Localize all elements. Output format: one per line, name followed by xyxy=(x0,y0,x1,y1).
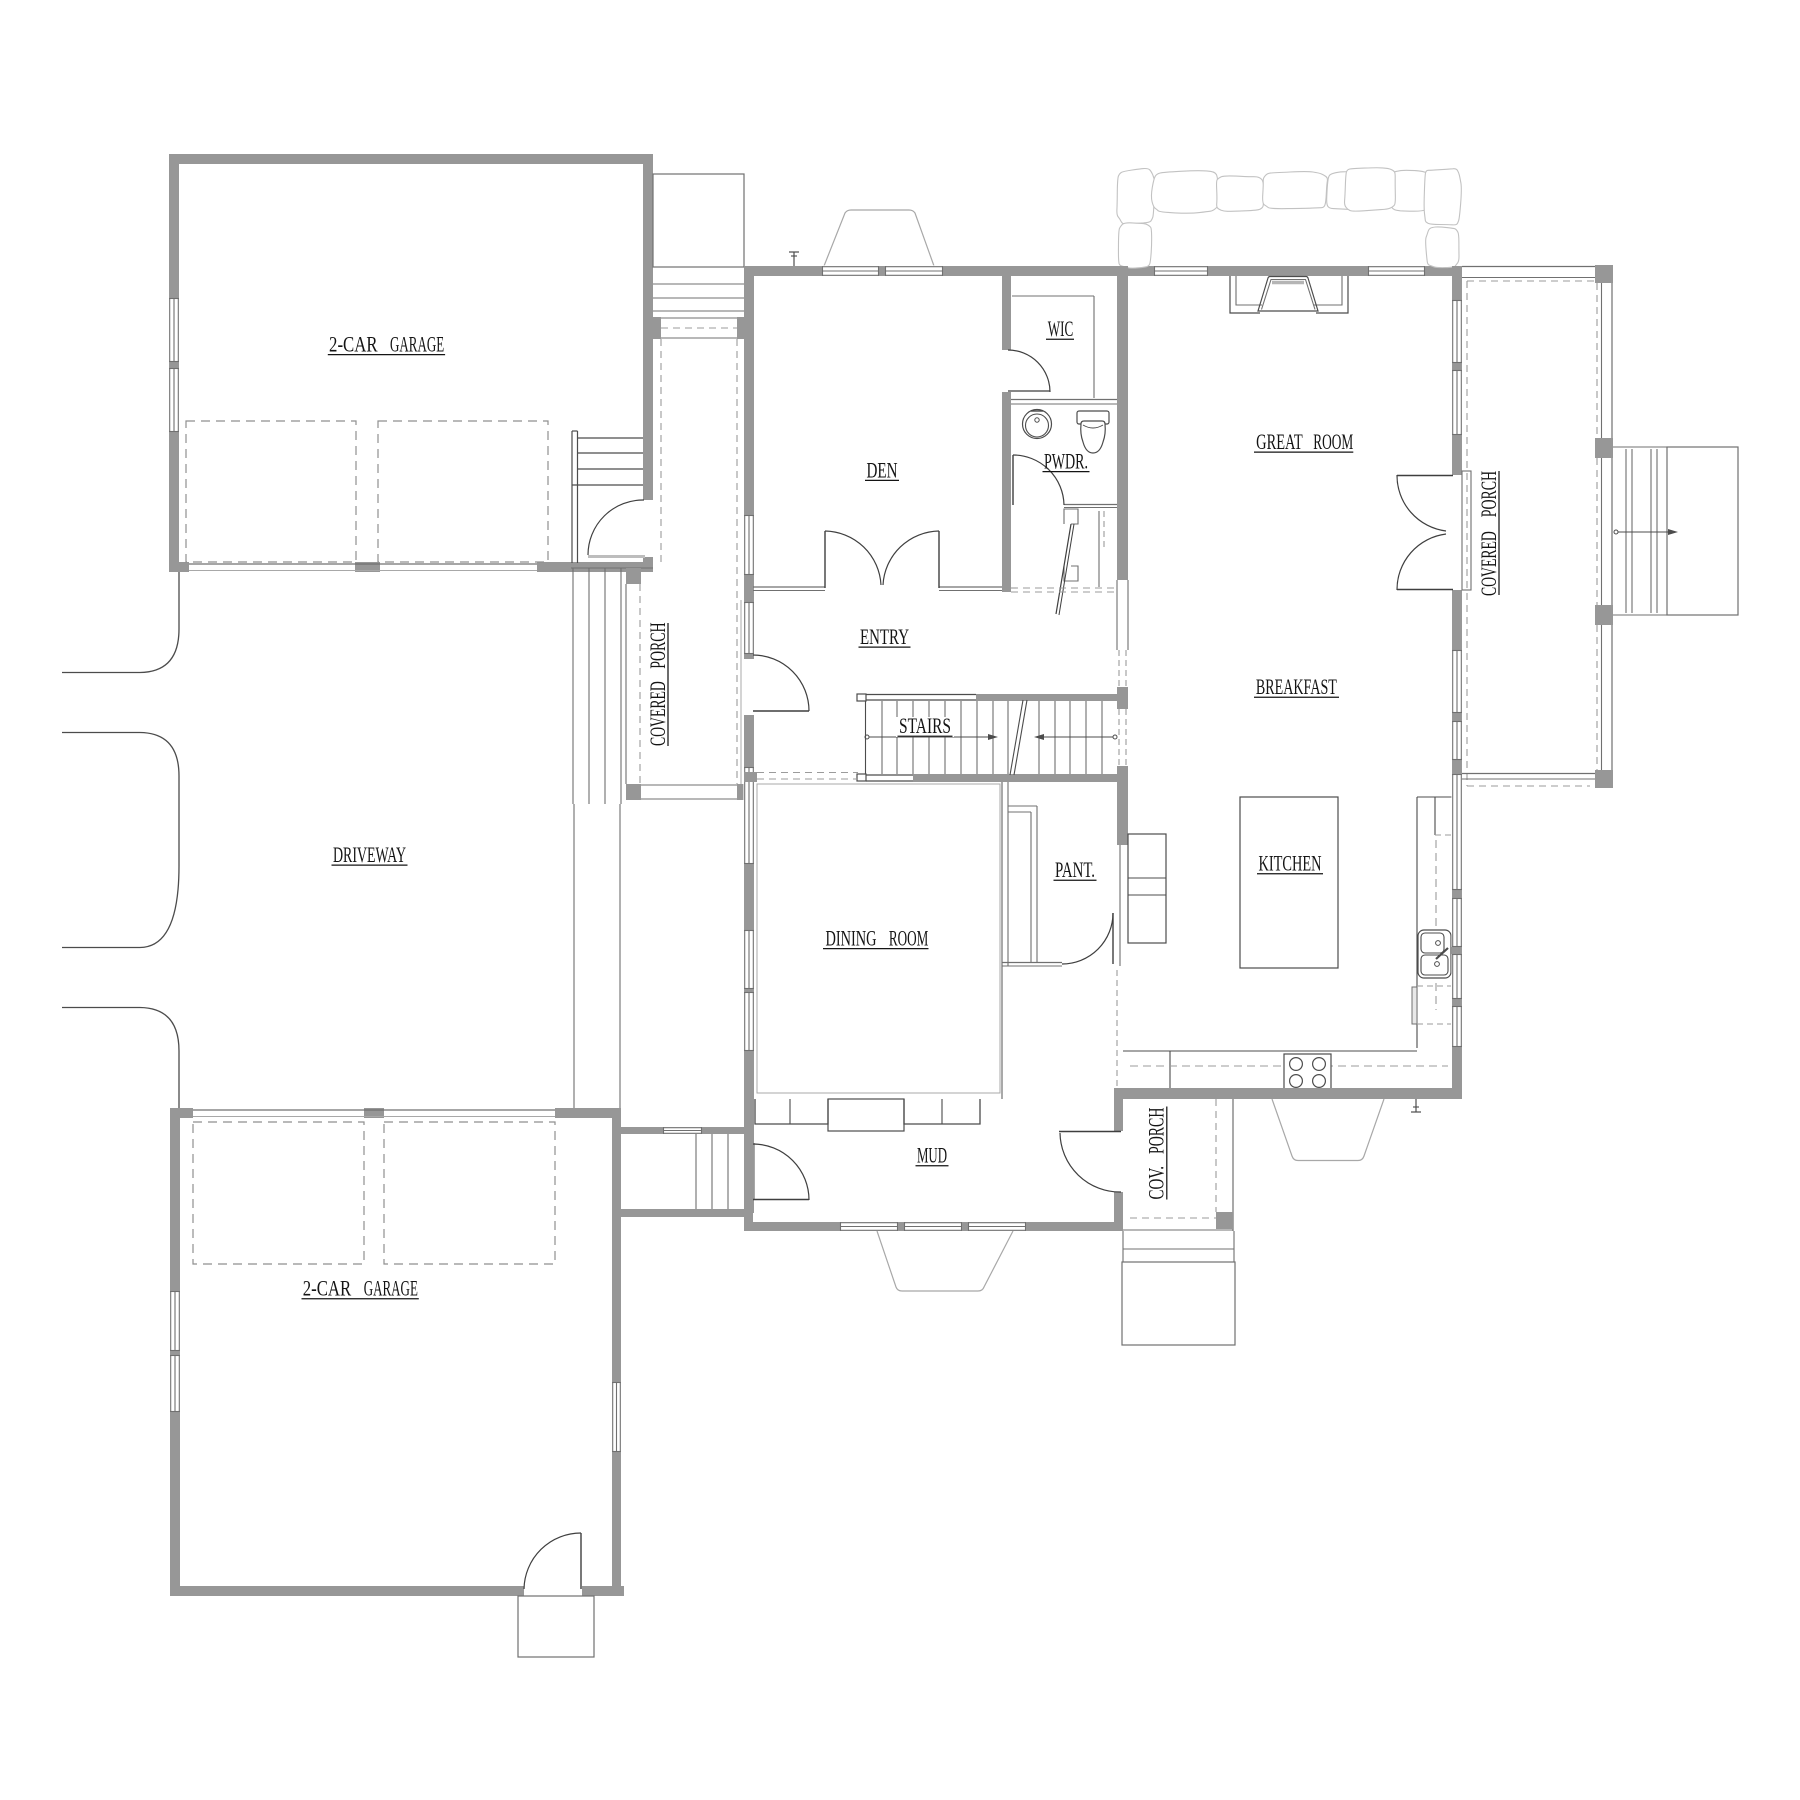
svg-text:GARAGE: GARAGE xyxy=(390,332,444,357)
svg-text:PWDR.: PWDR. xyxy=(1044,449,1088,474)
svg-text:ROOM: ROOM xyxy=(889,926,928,951)
svg-text:ENTRY: ENTRY xyxy=(860,624,909,649)
svg-text:MUD: MUD xyxy=(917,1143,947,1168)
svg-text:DINING: DINING xyxy=(826,926,877,951)
svg-text:GREAT: GREAT xyxy=(1256,429,1303,454)
svg-text:KITCHEN: KITCHEN xyxy=(1259,851,1322,876)
svg-text:COVERED: COVERED xyxy=(645,681,670,746)
svg-text:BREAKFAST: BREAKFAST xyxy=(1256,674,1337,699)
svg-text:WIC: WIC xyxy=(1048,316,1074,341)
svg-text:2-CAR: 2-CAR xyxy=(329,332,378,357)
svg-text:PANT.: PANT. xyxy=(1055,857,1095,882)
svg-text:COVERED: COVERED xyxy=(1476,531,1501,596)
svg-text:PORCH: PORCH xyxy=(1476,471,1501,517)
svg-text:DEN: DEN xyxy=(867,457,898,482)
svg-text:STAIRS: STAIRS xyxy=(899,713,951,738)
svg-text:DRIVEWAY: DRIVEWAY xyxy=(333,842,406,867)
svg-text:GARAGE: GARAGE xyxy=(364,1276,418,1301)
svg-text:PORCH: PORCH xyxy=(1144,1108,1169,1154)
svg-text:COV.: COV. xyxy=(1144,1166,1169,1200)
svg-text:PORCH: PORCH xyxy=(645,622,670,668)
svg-text:2-CAR: 2-CAR xyxy=(303,1276,352,1301)
svg-text:ROOM: ROOM xyxy=(1313,429,1353,454)
